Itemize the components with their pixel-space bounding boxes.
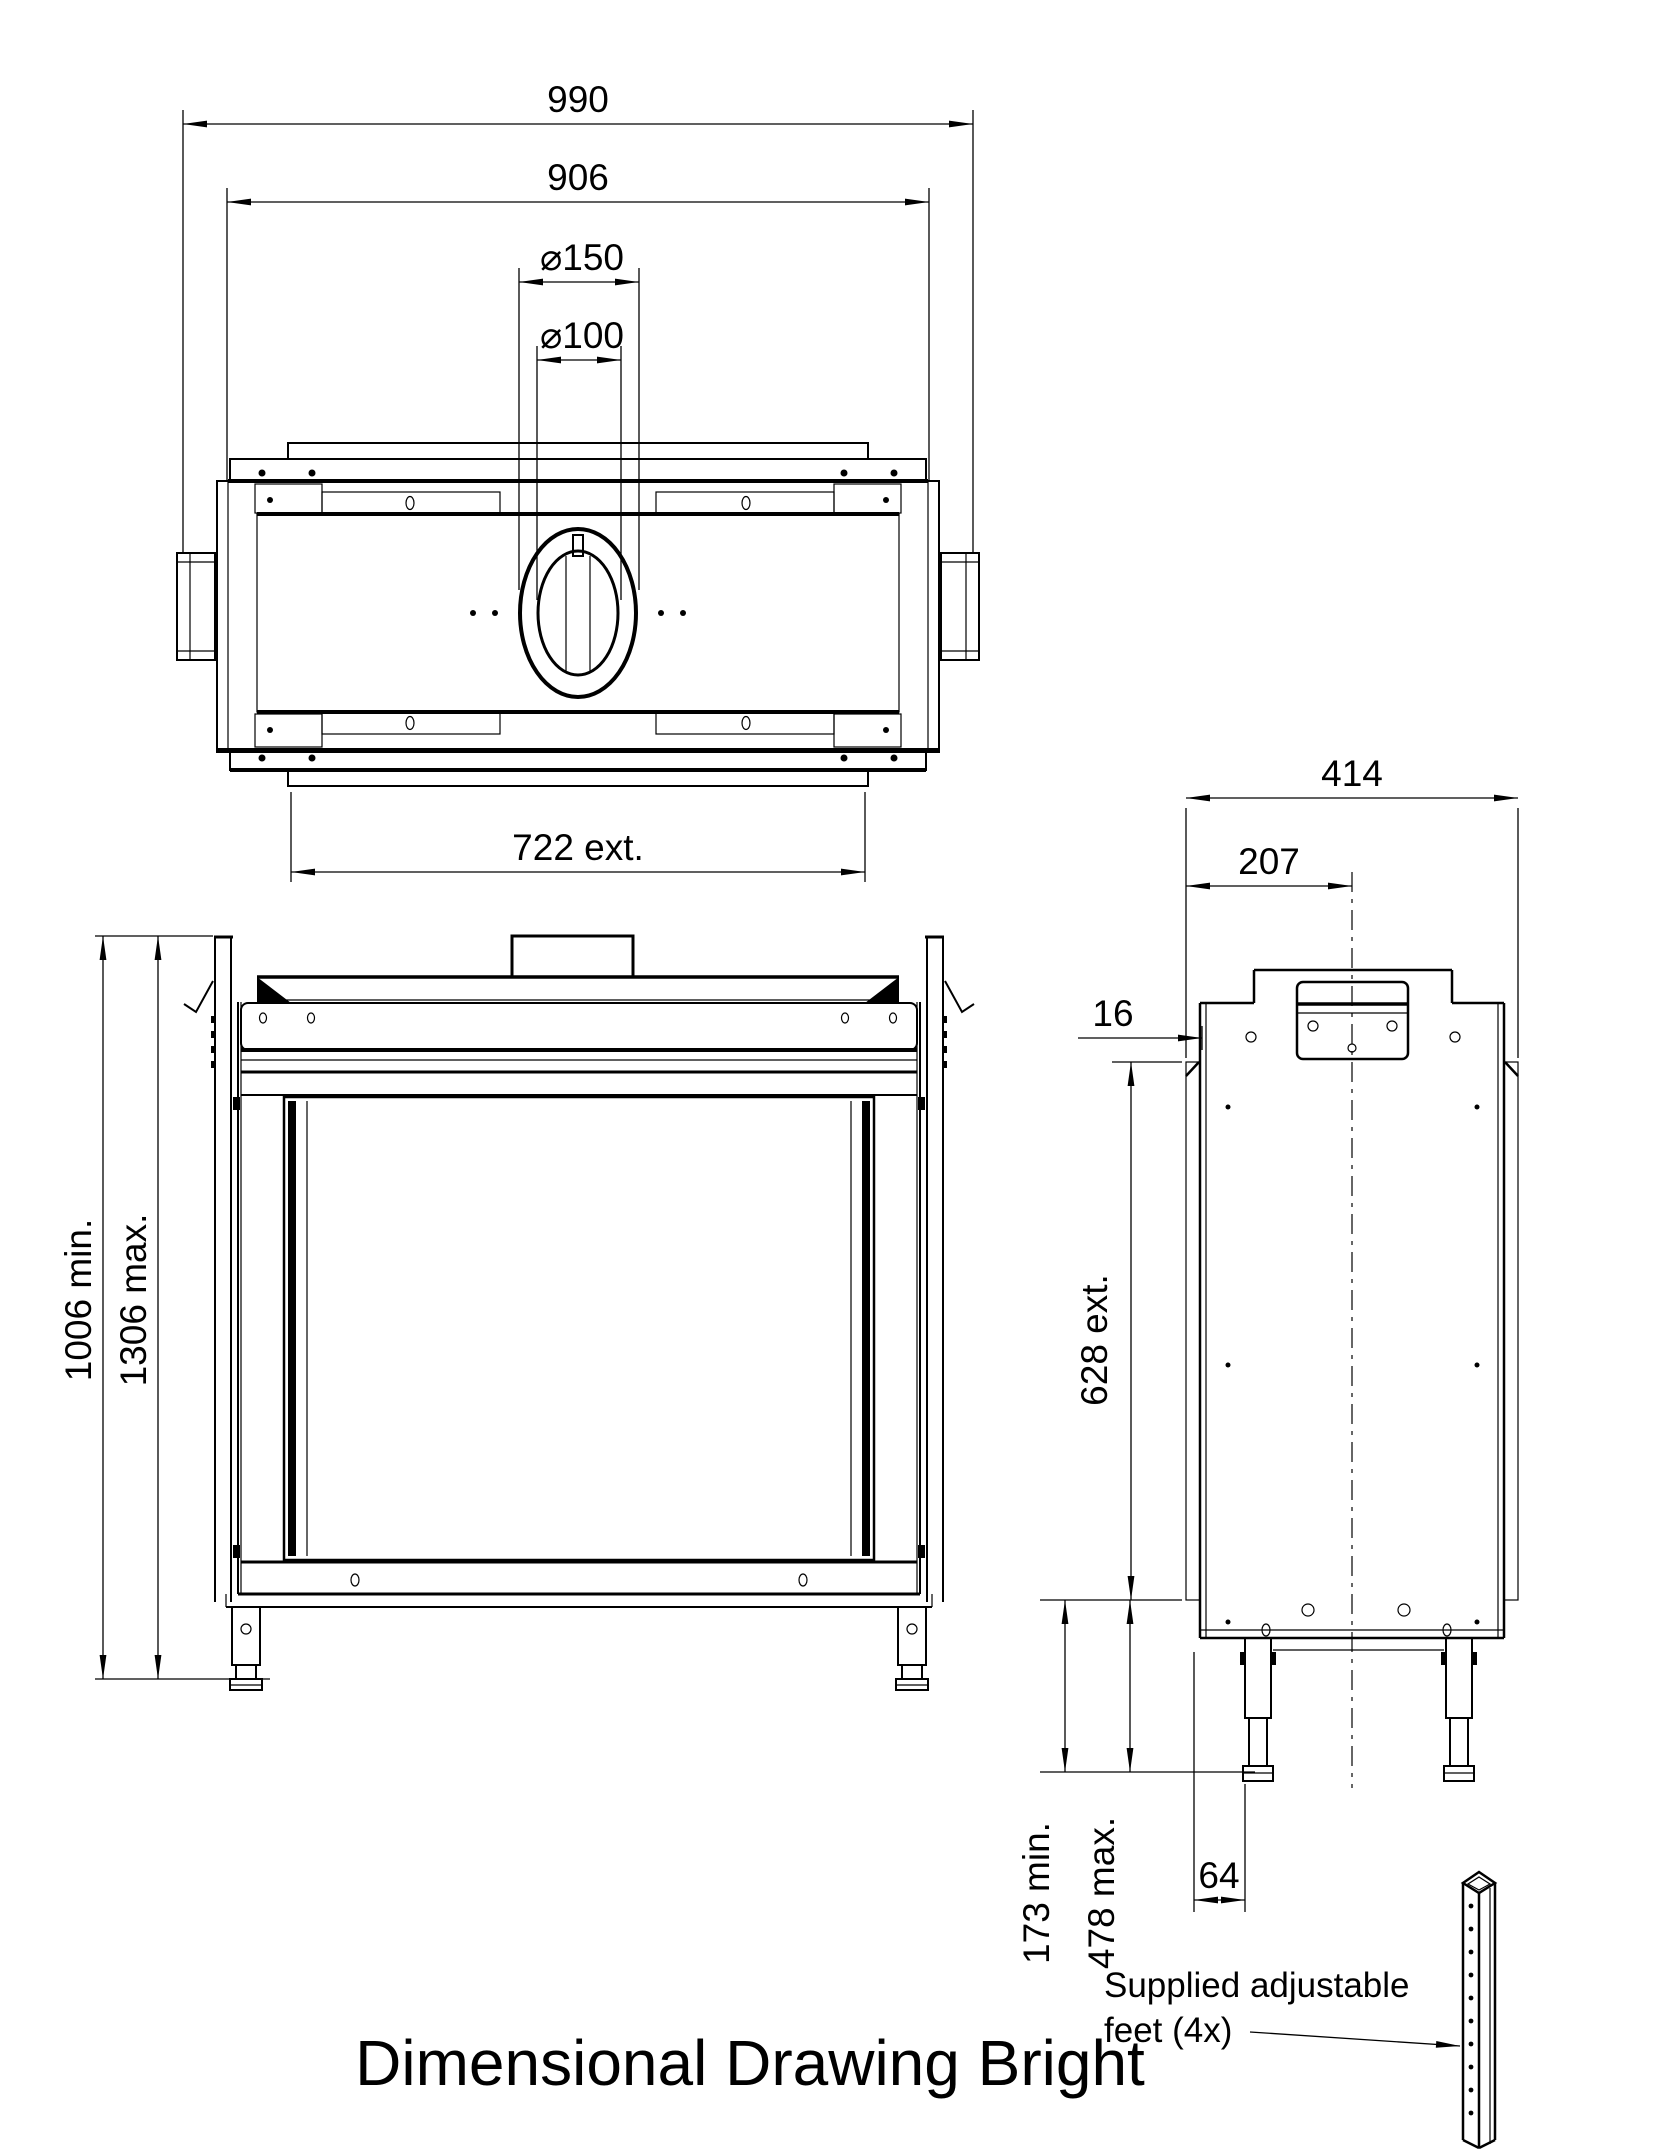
dim-depth-label: 414 bbox=[1321, 753, 1383, 794]
flue-stub bbox=[512, 936, 633, 977]
side-front-foot bbox=[1240, 1638, 1276, 1781]
dim-height-max-label: 1306 max. bbox=[113, 1214, 154, 1387]
front-view: 1006 min. 1306 max. bbox=[58, 936, 974, 1690]
front-right-foot bbox=[896, 1607, 928, 1690]
right-hook bbox=[945, 981, 974, 1012]
side-view-dim-64: 64 bbox=[1194, 1652, 1245, 1912]
top-view: 990 906 ⌀150 ⌀100 bbox=[177, 79, 979, 882]
side-view-dim-207: 207 bbox=[1186, 841, 1352, 886]
top-view-dim-d100: ⌀100 bbox=[537, 315, 624, 600]
adjustable-foot-tube bbox=[1463, 1872, 1495, 2148]
dim-feet-min-label: 173 min. bbox=[1016, 1822, 1057, 1964]
side-view-dim-628: 628 ext. bbox=[1040, 1062, 1182, 1600]
side-rear-foot bbox=[1441, 1638, 1477, 1781]
top-view-dim-722: 722 ext. bbox=[291, 792, 865, 882]
dimensional-drawing: 990 906 ⌀150 ⌀100 bbox=[0, 0, 1654, 2153]
dim-exterior-width-label: 722 ext. bbox=[512, 827, 644, 868]
left-hook bbox=[184, 981, 213, 1012]
side-view-dim-414: 414 bbox=[1186, 753, 1518, 1058]
dim-flue-outer-label: ⌀150 bbox=[540, 237, 624, 278]
dim-overall-width-label: 990 bbox=[547, 79, 609, 120]
side-view: 414 207 16 bbox=[1016, 753, 1518, 1969]
side-view-dim-16: 16 bbox=[1078, 993, 1202, 1050]
dim-frame-offset-label: 16 bbox=[1092, 993, 1133, 1034]
top-view-body bbox=[177, 443, 979, 786]
left-bracket bbox=[211, 937, 233, 1602]
feet-note-line1: Supplied adjustable bbox=[1104, 1966, 1410, 2005]
feet-note-leader bbox=[1250, 2032, 1460, 2046]
glass-window bbox=[241, 1095, 917, 1560]
dim-feet-max-label: 478 max. bbox=[1081, 1817, 1122, 1969]
foot-detail: Supplied adjustable feet (4x) bbox=[1104, 1872, 1495, 2148]
drawing-page: 990 906 ⌀150 ⌀100 bbox=[0, 0, 1654, 2153]
dim-body-width-label: 906 bbox=[547, 157, 609, 198]
front-view-body bbox=[184, 936, 974, 1690]
side-view-dim-feet-height: 173 min. 478 max. bbox=[1016, 1600, 1255, 1969]
front-left-foot bbox=[230, 1607, 262, 1690]
top-view-right-duct-tab bbox=[941, 553, 979, 660]
top-view-left-duct-tab bbox=[177, 553, 215, 660]
dim-height-min-label: 1006 min. bbox=[58, 1219, 99, 1382]
drawing-title: Dimensional Drawing Bright bbox=[355, 2027, 1145, 2099]
control-knob bbox=[520, 529, 636, 697]
dim-flue-center-label: 207 bbox=[1238, 841, 1300, 882]
dim-exterior-depth-label: 628 ext. bbox=[1074, 1274, 1115, 1406]
side-view-body bbox=[1186, 872, 1518, 1788]
dim-flue-inner-label: ⌀100 bbox=[540, 315, 624, 356]
right-bracket bbox=[925, 937, 947, 1602]
dim-foot-inset-label: 64 bbox=[1198, 1855, 1239, 1896]
